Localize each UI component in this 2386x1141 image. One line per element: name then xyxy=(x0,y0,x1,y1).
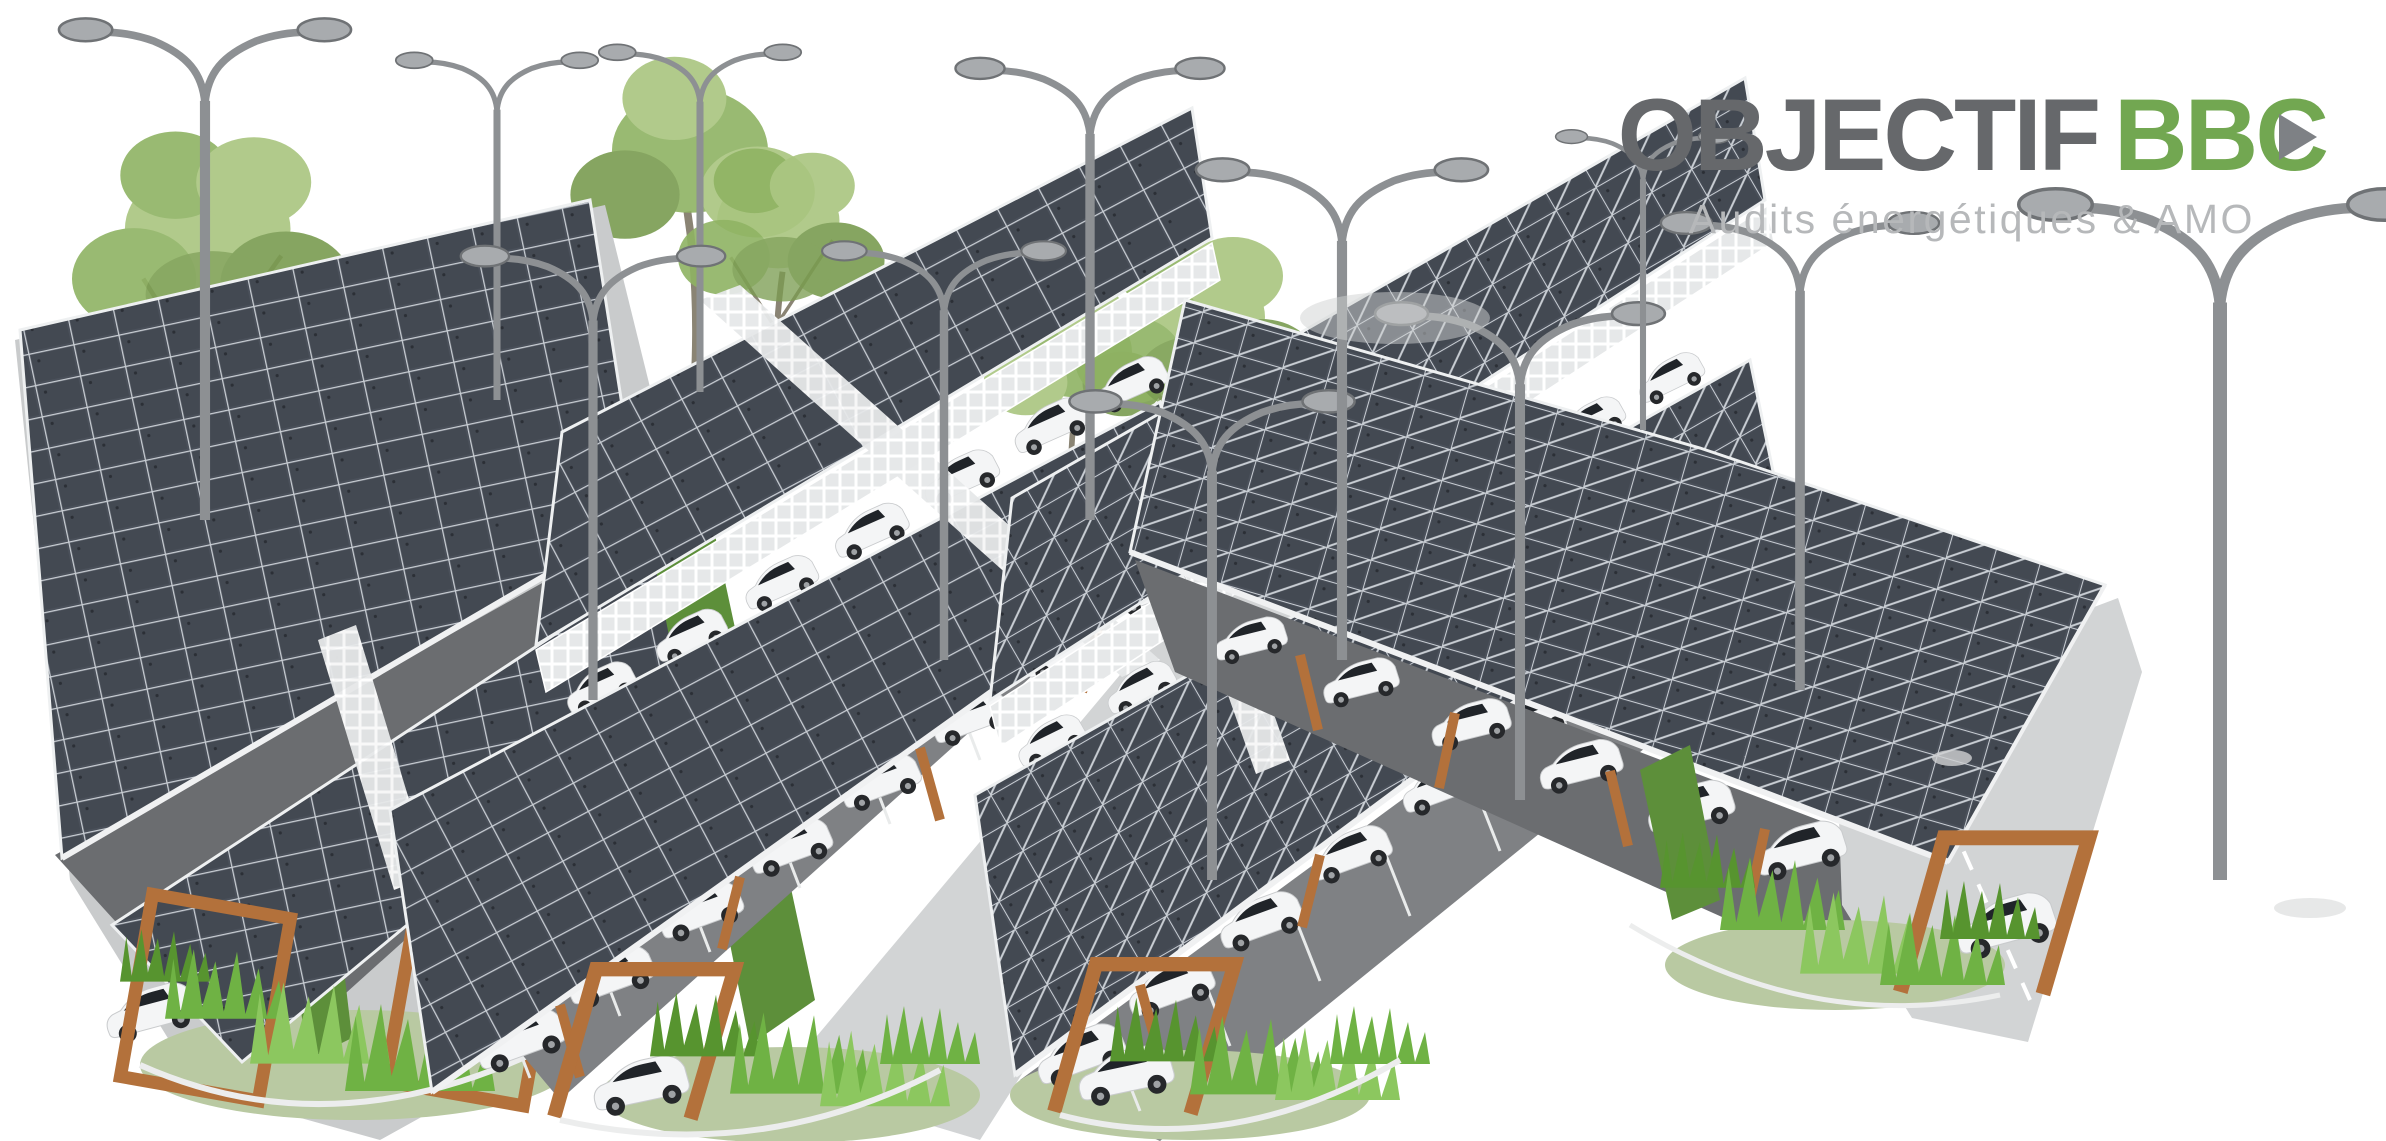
logo-accent-bb: BB xyxy=(2114,78,2255,192)
shadow-patch xyxy=(2274,898,2346,918)
shadow-patch xyxy=(1932,750,1972,766)
logo-title-accent: BBC xyxy=(2114,78,2326,192)
logo-title: OBJECTIFBBC xyxy=(1618,84,2326,186)
shadow-patch xyxy=(1300,292,1490,344)
play-icon xyxy=(2279,114,2319,160)
rendering-canvas: OBJECTIFBBC Audits énergétiques & AMO xyxy=(0,0,2386,1141)
company-logo: OBJECTIFBBC Audits énergétiques & AMO xyxy=(1618,84,2326,243)
logo-title-primary: OBJECTIF xyxy=(1618,78,2098,192)
logo-accent-c: C xyxy=(2255,84,2326,186)
logo-subtitle: Audits énergétiques & AMO xyxy=(1618,196,2326,243)
